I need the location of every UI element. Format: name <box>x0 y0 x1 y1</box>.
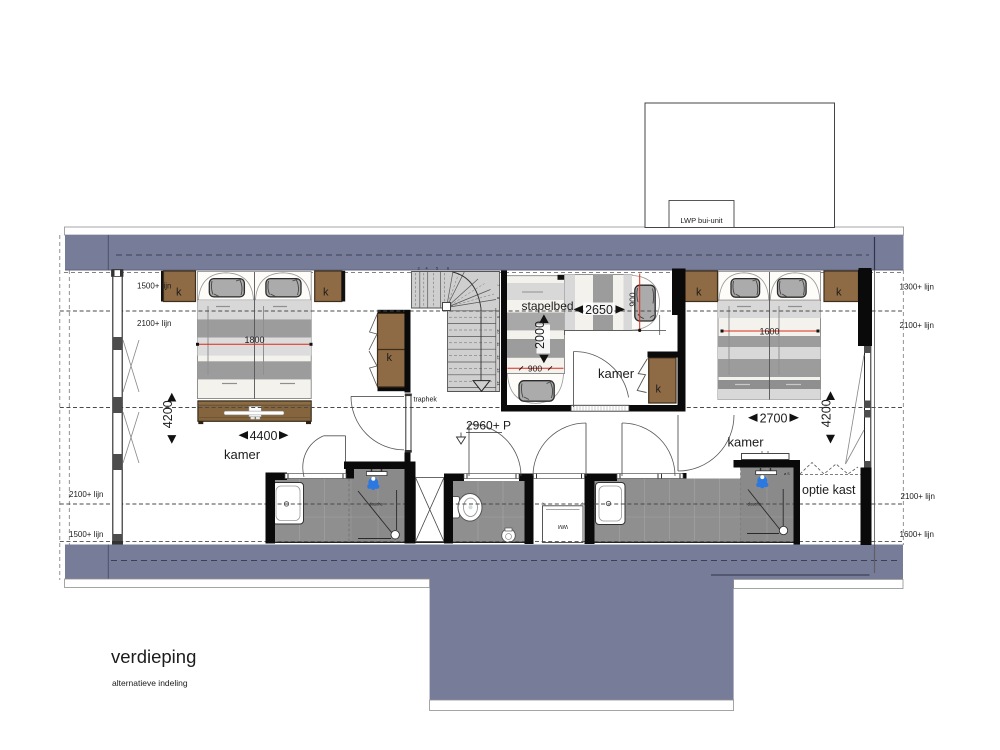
svg-text:14: 14 <box>496 381 501 386</box>
svg-text:kamer: kamer <box>598 366 635 381</box>
svg-text:k: k <box>323 287 329 299</box>
svg-text:2960+ P: 2960+ P <box>466 419 511 433</box>
svg-text:4200: 4200 <box>161 400 175 428</box>
svg-text:k: k <box>696 287 702 299</box>
svg-text:2100+ lijn: 2100+ lijn <box>137 319 171 328</box>
svg-text:10: 10 <box>496 329 501 334</box>
svg-text:1600: 1600 <box>759 327 779 337</box>
svg-text:4200: 4200 <box>820 399 834 427</box>
svg-text:ø S: ø S <box>784 472 790 476</box>
svg-text:kamer: kamer <box>224 447 261 462</box>
svg-text:kamer: kamer <box>728 435 765 450</box>
svg-text:2100+ lijn: 2100+ lijn <box>69 490 103 499</box>
svg-text:12: 12 <box>496 355 501 360</box>
svg-text:alternatieve indeling: alternatieve indeling <box>112 678 188 688</box>
svg-text:k: k <box>656 384 662 396</box>
svg-text:2700: 2700 <box>760 411 788 425</box>
svg-text:stapelbed: stapelbed <box>522 299 574 313</box>
svg-text:k: k <box>387 352 393 364</box>
svg-text:1500+ lijn: 1500+ lijn <box>137 282 171 291</box>
svg-text:4400: 4400 <box>250 429 278 443</box>
svg-text:3: 3 <box>418 267 420 271</box>
svg-text:traphek: traphek <box>414 397 438 404</box>
svg-text:13: 13 <box>496 368 501 373</box>
svg-text:1500+ lijn: 1500+ lijn <box>69 530 103 539</box>
svg-text:k: k <box>176 287 182 299</box>
svg-text:900: 900 <box>528 364 542 374</box>
svg-text:verdieping: verdieping <box>111 646 196 667</box>
svg-text:LWP bui-unit: LWP bui-unit <box>680 216 723 225</box>
svg-text:2000: 2000 <box>533 321 547 349</box>
svg-text:2650: 2650 <box>585 303 613 317</box>
svg-text:1800: 1800 <box>244 335 264 345</box>
svg-text:optie kast: optie kast <box>802 483 856 497</box>
svg-text:WM: WM <box>558 523 568 529</box>
svg-text:2100+ lijn: 2100+ lijn <box>900 321 934 330</box>
svg-text:1300+ lijn: 1300+ lijn <box>900 283 934 292</box>
svg-text:4: 4 <box>426 267 428 271</box>
svg-text:6: 6 <box>447 267 449 271</box>
svg-text:k: k <box>836 287 842 299</box>
svg-text:2100+ lijn: 2100+ lijn <box>901 492 935 501</box>
svg-text:5: 5 <box>436 267 438 271</box>
svg-text:900: 900 <box>628 292 638 306</box>
svg-text:1600+ lijn: 1600+ lijn <box>900 530 934 539</box>
